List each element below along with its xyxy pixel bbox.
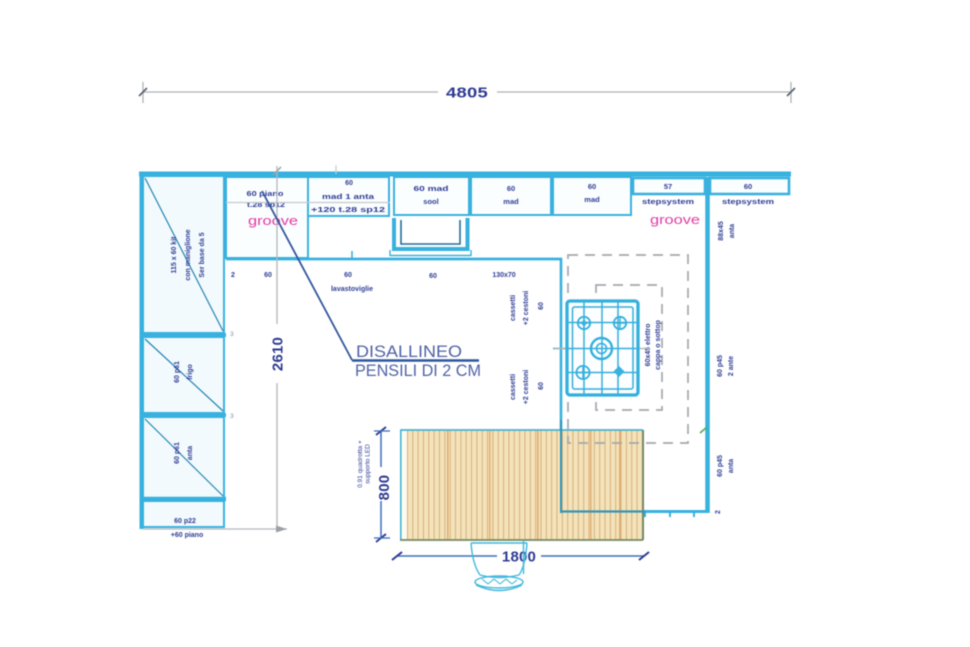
svg-text:115 x 60 kit: 115 x 60 kit — [171, 236, 178, 274]
svg-text:supporto LED: supporto LED — [365, 444, 372, 484]
svg-text:2 ante: 2 ante — [728, 356, 735, 376]
svg-text:cassetti: cassetti — [510, 374, 517, 400]
svg-text:anta: anta — [728, 459, 735, 474]
svg-text:cappa o sottop: cappa o sottop — [655, 320, 662, 370]
svg-text:60: 60 — [744, 182, 752, 191]
svg-text:2: 2 — [715, 510, 722, 514]
svg-text:+2 cestoni: +2 cestoni — [523, 291, 530, 325]
svg-text:anta: anta — [187, 446, 194, 461]
svg-text:60: 60 — [344, 272, 352, 279]
svg-text:mad: mad — [503, 197, 519, 206]
svg-text:groove: groove — [248, 213, 298, 228]
svg-text:t.28 sp12: t.28 sp12 — [247, 200, 285, 209]
svg-text:88x45: 88x45 — [718, 221, 725, 241]
svg-text:60 p45: 60 p45 — [717, 455, 724, 477]
svg-text:60: 60 — [538, 382, 545, 390]
svg-text:con maniglione: con maniglione — [185, 229, 192, 280]
svg-text:groove: groove — [650, 212, 700, 227]
svg-text:130x70: 130x70 — [492, 272, 515, 279]
svg-text:60x45 elettro: 60x45 elettro — [645, 324, 652, 367]
svg-text:DISALLINEO: DISALLINEO — [356, 342, 462, 361]
svg-text:+60 piano: +60 piano — [171, 532, 203, 539]
svg-text:mad: mad — [584, 195, 600, 204]
svg-text:lavastoviglie: lavastoviglie — [331, 286, 373, 293]
svg-text:3: 3 — [230, 331, 234, 338]
svg-text:60: 60 — [507, 184, 515, 193]
svg-text:60: 60 — [588, 182, 596, 191]
svg-text:60: 60 — [345, 180, 353, 187]
svg-text:sool: sool — [423, 197, 438, 206]
svg-text:60: 60 — [429, 273, 437, 280]
svg-text:60 p45: 60 p45 — [717, 355, 724, 377]
svg-text:800: 800 — [376, 475, 393, 501]
svg-text:+120 t.28 sp12: +120 t.28 sp12 — [311, 207, 385, 214]
svg-text:Ser base da 5: Ser base da 5 — [199, 232, 206, 277]
svg-text:frigo: frigo — [187, 364, 194, 380]
svg-text:60 p22: 60 p22 — [174, 518, 196, 525]
svg-text:cassetti: cassetti — [510, 295, 517, 321]
svg-text:stepsystem: stepsystem — [722, 197, 774, 206]
svg-text:60 p61: 60 p61 — [174, 361, 181, 383]
svg-text:60 p61: 60 p61 — [174, 442, 181, 464]
svg-text:2: 2 — [231, 272, 235, 279]
svg-text:2610: 2610 — [270, 337, 287, 371]
svg-text:1800: 1800 — [502, 549, 536, 566]
svg-text:57: 57 — [664, 182, 672, 191]
svg-text:anta: anta — [729, 224, 736, 239]
svg-text:mad 1 anta: mad 1 anta — [322, 194, 374, 201]
svg-text:3: 3 — [230, 413, 234, 420]
svg-text:stepsystem: stepsystem — [642, 197, 694, 206]
svg-text:60: 60 — [264, 272, 272, 279]
svg-text:0.91 quadrotta +: 0.91 quadrotta + — [357, 440, 364, 488]
svg-text:PENSILI DI 2 CM: PENSILI DI 2 CM — [355, 361, 481, 380]
svg-text:60: 60 — [538, 302, 545, 310]
svg-text:4805: 4805 — [446, 85, 488, 102]
svg-text:+2 cestoni: +2 cestoni — [523, 370, 530, 404]
svg-text:60 mad: 60 mad — [414, 184, 450, 193]
